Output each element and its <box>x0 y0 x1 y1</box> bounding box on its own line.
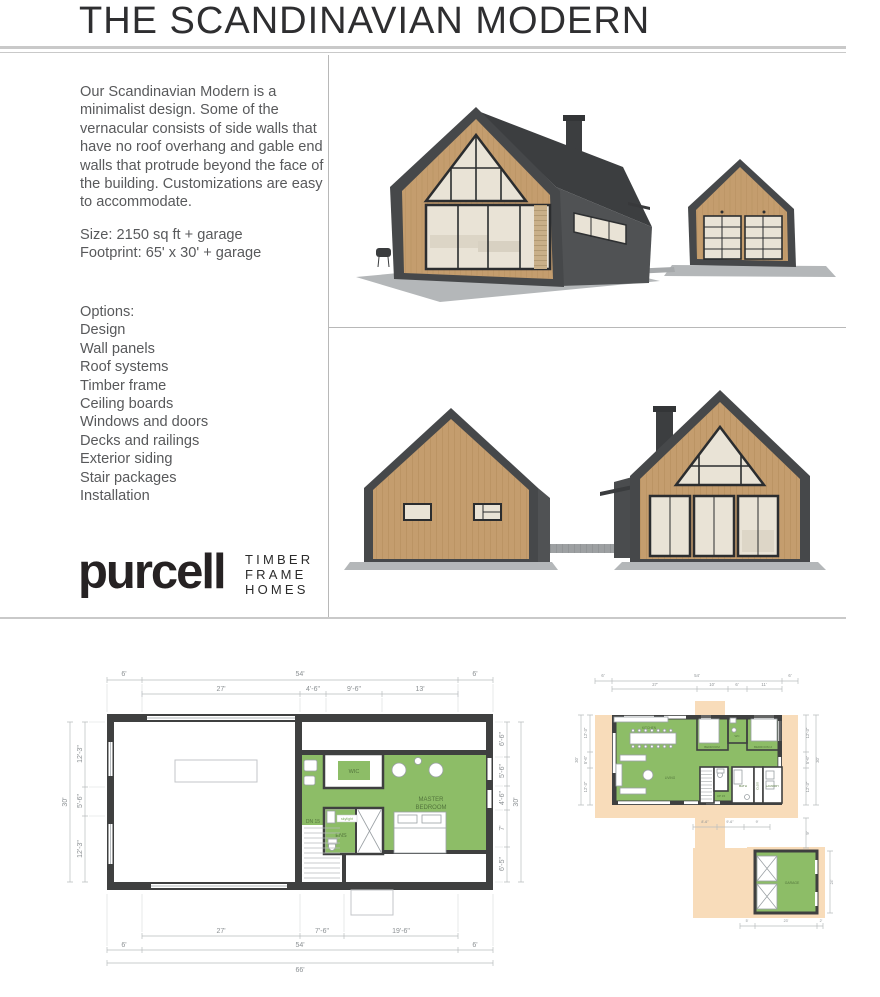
room-label: BEDROOM 2 <box>754 745 772 749</box>
dim-label: 5'-6" <box>805 755 810 764</box>
dim-label: 6' <box>788 673 791 678</box>
dim-label: 19'-6" <box>392 928 410 935</box>
dim-label: 5'-6" <box>77 794 84 808</box>
header-divider <box>0 46 846 53</box>
room-label: WC <box>735 734 741 738</box>
dim-label: 5' <box>746 919 749 923</box>
description-paragraph: Our Scandinavian Modern is a minimalist … <box>80 83 332 212</box>
dim-label: 6' <box>121 671 126 678</box>
room-label: CLOS <box>756 782 760 790</box>
dim-label: 6' <box>472 671 477 678</box>
render-elevations <box>328 328 880 618</box>
room-label: WIC <box>349 769 360 775</box>
size-line: Size: 2150 sq ft + garage <box>80 226 332 244</box>
dim-label: 10' <box>709 682 715 687</box>
house-base-slab <box>614 562 826 570</box>
dim-label: 13' <box>415 686 424 693</box>
room-label: MASTER <box>418 797 444 803</box>
brand-tagline: TIMBER FRAME HOMES <box>245 552 313 597</box>
room-label: BEDROOM <box>704 745 720 749</box>
dim-label: 12'-3" <box>805 781 810 792</box>
intro-block: Our Scandinavian Modern is a minimalist … <box>80 83 332 263</box>
stair-label: UP 15 <box>717 794 726 798</box>
option-item: Stair packages <box>80 469 208 487</box>
dim-label: 6' <box>472 942 477 949</box>
dim-label: 6' <box>121 942 126 949</box>
stair-label: DN 15 <box>306 819 320 825</box>
option-item: Wall panels <box>80 340 208 358</box>
room-label: KITCHEN <box>642 726 657 730</box>
dim-label: 54' <box>295 671 304 678</box>
dim-label: 9'-6" <box>347 686 361 693</box>
dim-label: 23' <box>784 919 789 923</box>
garage-plan: GARAGE <box>755 851 818 913</box>
dim-label: 30' <box>815 757 820 763</box>
dim-label: 27' <box>216 928 225 935</box>
dim-label: 9' <box>805 831 810 834</box>
option-item: Ceiling boards <box>80 395 208 413</box>
dim-label: 5'-6" <box>499 764 506 778</box>
option-item: Decks and railings <box>80 432 208 450</box>
tagline-word: FRAME <box>245 567 313 582</box>
brochure-page: THE SCANDINAVIAN MODERN Our Scandinavian… <box>0 0 880 997</box>
main-floor-plan: KITCHEN LIVING BEDROOM WC BEDROOM 2 BATH… <box>560 655 880 975</box>
ensuite-room: skylight ENS <box>324 808 383 854</box>
dim-label: 6' <box>735 682 738 687</box>
purcell-logo: purcell TIMBER FRAME HOMES <box>78 548 338 608</box>
render-exterior-perspective <box>328 55 880 327</box>
dim-label: 9'-6" <box>726 820 734 824</box>
footprint-line: Footprint: 65' x 30' + garage <box>80 244 332 262</box>
dim-label: 6' <box>601 673 604 678</box>
dim-label: 12'-3" <box>77 840 84 858</box>
room-label: BATH <box>739 784 747 788</box>
glass-wall <box>426 205 550 269</box>
dim-label: 9' <box>756 820 759 824</box>
dim-label: 6'-5" <box>499 857 506 871</box>
option-item: Roof systems <box>80 358 208 376</box>
dim-label: 54' <box>295 942 304 949</box>
dim-label: 66' <box>295 967 304 974</box>
room-label: skylight <box>341 817 353 821</box>
dim-label: 24' <box>830 879 834 884</box>
room-label: GARAGE <box>785 881 800 885</box>
dim-label: 30' <box>574 757 579 763</box>
upper-floor-plan: WIC skylight ENS DN 15 MASTER BEDROOM <box>55 650 535 980</box>
dim-label: 27' <box>652 682 658 687</box>
dim-label: 30' <box>513 797 520 806</box>
option-item: Installation <box>80 487 208 505</box>
dim-label: 12'-3" <box>77 745 84 763</box>
tagline-word: HOMES <box>245 582 313 597</box>
bbq-grill <box>376 248 391 267</box>
dim-label: 12'-3" <box>583 781 588 792</box>
specs-block: Size: 2150 sq ft + garage Footprint: 65'… <box>80 226 332 263</box>
dim-label: 6'-6" <box>499 732 506 746</box>
dim-label: 5'-6" <box>583 755 588 764</box>
option-item: Windows and doors <box>80 413 208 431</box>
garage-side-sliver <box>538 488 550 562</box>
garage-elevation <box>344 408 558 570</box>
dim-label: 8'-6" <box>701 820 709 824</box>
dim-label: 30' <box>62 797 69 806</box>
option-item: Design <box>80 321 208 339</box>
options-title: Options: <box>80 303 208 321</box>
dim-label: 4'-6" <box>499 791 506 805</box>
dim-label: 11' <box>761 682 766 687</box>
options-list: Options: Design Wall panels Roof systems… <box>80 303 208 505</box>
dim-label: 2' <box>820 919 823 923</box>
option-item: Timber frame <box>80 377 208 395</box>
room-label: BEDROOM <box>415 805 446 811</box>
page-title: THE SCANDINAVIAN MODERN <box>79 0 650 43</box>
dim-label: 12'-3" <box>583 727 588 738</box>
wic-room: WIC <box>324 754 383 788</box>
room-label: LIVING <box>665 776 676 780</box>
firewood-stack <box>534 205 547 269</box>
glass-doors <box>650 496 778 556</box>
dim-label: 54' <box>694 673 700 678</box>
dim-label: 12'-3" <box>805 727 810 738</box>
option-item: Exterior siding <box>80 450 208 468</box>
main-house <box>376 107 652 287</box>
dim-label: 7' <box>499 825 506 830</box>
brand-wordmark: purcell <box>78 545 225 599</box>
house-elevation <box>600 390 826 570</box>
garage-building <box>688 159 796 267</box>
dim-label: 7'-6" <box>315 928 329 935</box>
room-label: LAUNDRY <box>766 784 779 788</box>
dim-label: 4'-6" <box>306 686 320 693</box>
tagline-word: TIMBER <box>245 552 313 567</box>
dim-label: 27' <box>216 686 225 693</box>
garage-base-slab <box>344 562 558 570</box>
